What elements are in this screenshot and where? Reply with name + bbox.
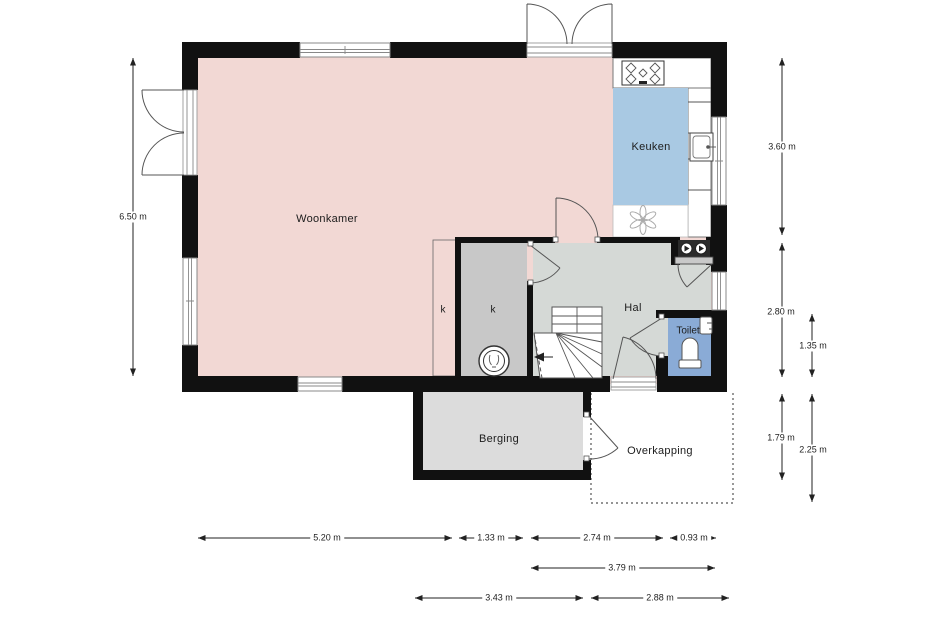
window-right-upper bbox=[712, 117, 726, 205]
dim-right-179: 1.79 m bbox=[764, 433, 798, 444]
toilet-icon bbox=[679, 338, 701, 368]
window-right-lower bbox=[712, 272, 726, 310]
floor-plan-drawing bbox=[0, 0, 945, 625]
dim-bottom-093: 0.93 m bbox=[677, 533, 711, 544]
room-label-overkapping: Overkapping bbox=[627, 445, 693, 457]
dim-right-280: 2.80 m bbox=[764, 307, 798, 318]
room-label-keuken: Keuken bbox=[631, 141, 670, 153]
dim-left-height: 6.50 m bbox=[116, 212, 150, 223]
dim-right-225: 2.25 m bbox=[796, 445, 830, 456]
room-label-closet-left: k bbox=[441, 305, 446, 316]
hand-basin-icon bbox=[700, 317, 712, 334]
berging-floor bbox=[423, 392, 583, 470]
washer-dryer-icon bbox=[675, 240, 713, 264]
french-door-left bbox=[142, 90, 184, 175]
dim-right-360: 3.60 m bbox=[765, 142, 799, 153]
sink-icon bbox=[690, 133, 716, 161]
boiler-icon bbox=[479, 346, 509, 376]
window-bottom bbox=[298, 377, 342, 391]
kitchen-counter-right bbox=[688, 88, 711, 237]
dim-bottom-379: 3.79 m bbox=[605, 563, 639, 574]
room-label-closet-right: k bbox=[491, 305, 496, 316]
dim-right-135: 1.35 m bbox=[796, 341, 830, 352]
dim-bottom-133: 1.33 m bbox=[474, 533, 508, 544]
floor-plan-page: Woonkamer Keuken Hal Toilet Berging Over… bbox=[0, 0, 945, 625]
floors bbox=[190, 50, 719, 470]
room-label-woonkamer: Woonkamer bbox=[296, 213, 358, 225]
dim-bottom-343: 3.43 m bbox=[482, 593, 516, 604]
window-top bbox=[300, 43, 390, 57]
door-berging bbox=[589, 416, 618, 459]
stove-icon bbox=[622, 61, 664, 85]
window-left bbox=[183, 258, 197, 345]
room-label-toilet: Toilet bbox=[676, 326, 699, 337]
room-label-berging: Berging bbox=[479, 433, 519, 445]
dim-bottom-288: 2.88 m bbox=[643, 593, 677, 604]
dim-bottom-520: 5.20 m bbox=[310, 533, 344, 544]
room-label-hal: Hal bbox=[624, 302, 641, 314]
dim-bottom-274: 2.74 m bbox=[580, 533, 614, 544]
french-door-top bbox=[527, 4, 612, 44]
